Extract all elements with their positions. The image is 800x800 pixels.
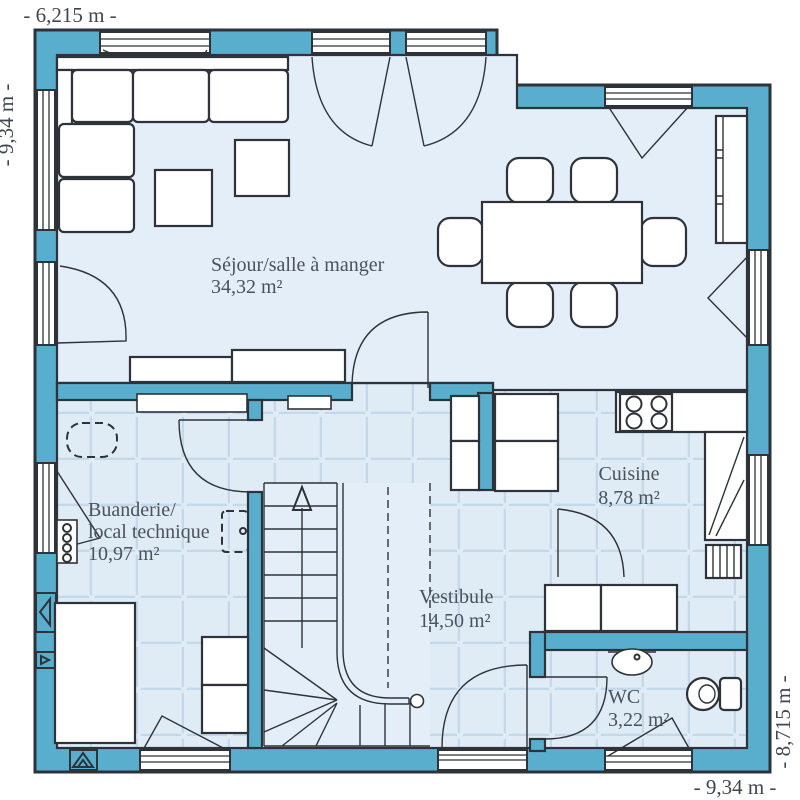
dining-table — [482, 202, 642, 283]
label-buanderie-name1: Buanderie/ — [88, 499, 176, 521]
label-buanderie-area: 10,97 m² — [88, 543, 160, 565]
toilet — [687, 678, 741, 710]
dimension-label-bottom: - 9,34 m - — [694, 775, 777, 799]
window-left-living — [37, 90, 55, 230]
storage-cupboard — [55, 603, 135, 743]
label-cuisine-area: 8,78 m² — [598, 487, 660, 509]
label-sejour-area: 34,32 m² — [211, 276, 283, 298]
dimension-label-left: - 9,34 m - — [0, 84, 18, 167]
label-vestibule-name: Vestibule — [419, 586, 494, 608]
dimension-label-top: - 6,215 m - — [23, 3, 116, 27]
floor-plan-page: Séjour/salle à manger 34,32 m² Buanderie… — [0, 0, 800, 800]
kitchen-tall-units — [495, 394, 558, 491]
side-table-1 — [155, 170, 212, 226]
radiator — [706, 545, 741, 578]
wall-buanderie-stairs — [248, 492, 262, 748]
label-wc-area: 3,22 m² — [608, 709, 670, 731]
wall-buanderie-stairs-top — [248, 400, 262, 420]
kitchen-counter-right — [705, 432, 747, 540]
dining-chair — [641, 218, 686, 266]
dining-chair — [571, 158, 617, 203]
dining-chair — [571, 282, 617, 327]
cooktop — [620, 394, 672, 431]
floor-plan: Séjour/salle à manger 34,32 m² Buanderie… — [0, 0, 800, 800]
heating-manifold — [57, 520, 77, 563]
label-wc-name: WC — [608, 686, 640, 708]
washer-dryer-stack — [202, 637, 248, 733]
dimension-label-right: - 8,715 m - — [771, 675, 795, 768]
label-sejour-name: Séjour/salle à manger — [211, 254, 385, 276]
wall-shelf — [137, 394, 247, 412]
side-table-2 — [235, 140, 289, 196]
wall-wc-left-upper — [530, 632, 545, 677]
label-cuisine-name: Cuisine — [598, 463, 659, 485]
label-buanderie-name2: local technique — [88, 521, 210, 543]
hall-shelf — [288, 396, 331, 409]
dining-chair — [507, 158, 553, 203]
hall-closet — [451, 396, 479, 490]
tall-cabinet — [716, 116, 747, 243]
wall-wc-left-lower — [530, 739, 545, 751]
dining-chair — [438, 218, 483, 266]
wall-vestibule-cuisine — [478, 393, 493, 490]
wall-wc-top — [543, 632, 747, 650]
kitchen-counter-bottom — [545, 585, 677, 631]
newel-post — [411, 695, 424, 708]
dining-chair — [507, 282, 553, 327]
staircase — [263, 483, 430, 746]
label-vestibule-area: 14,50 m² — [419, 610, 491, 632]
